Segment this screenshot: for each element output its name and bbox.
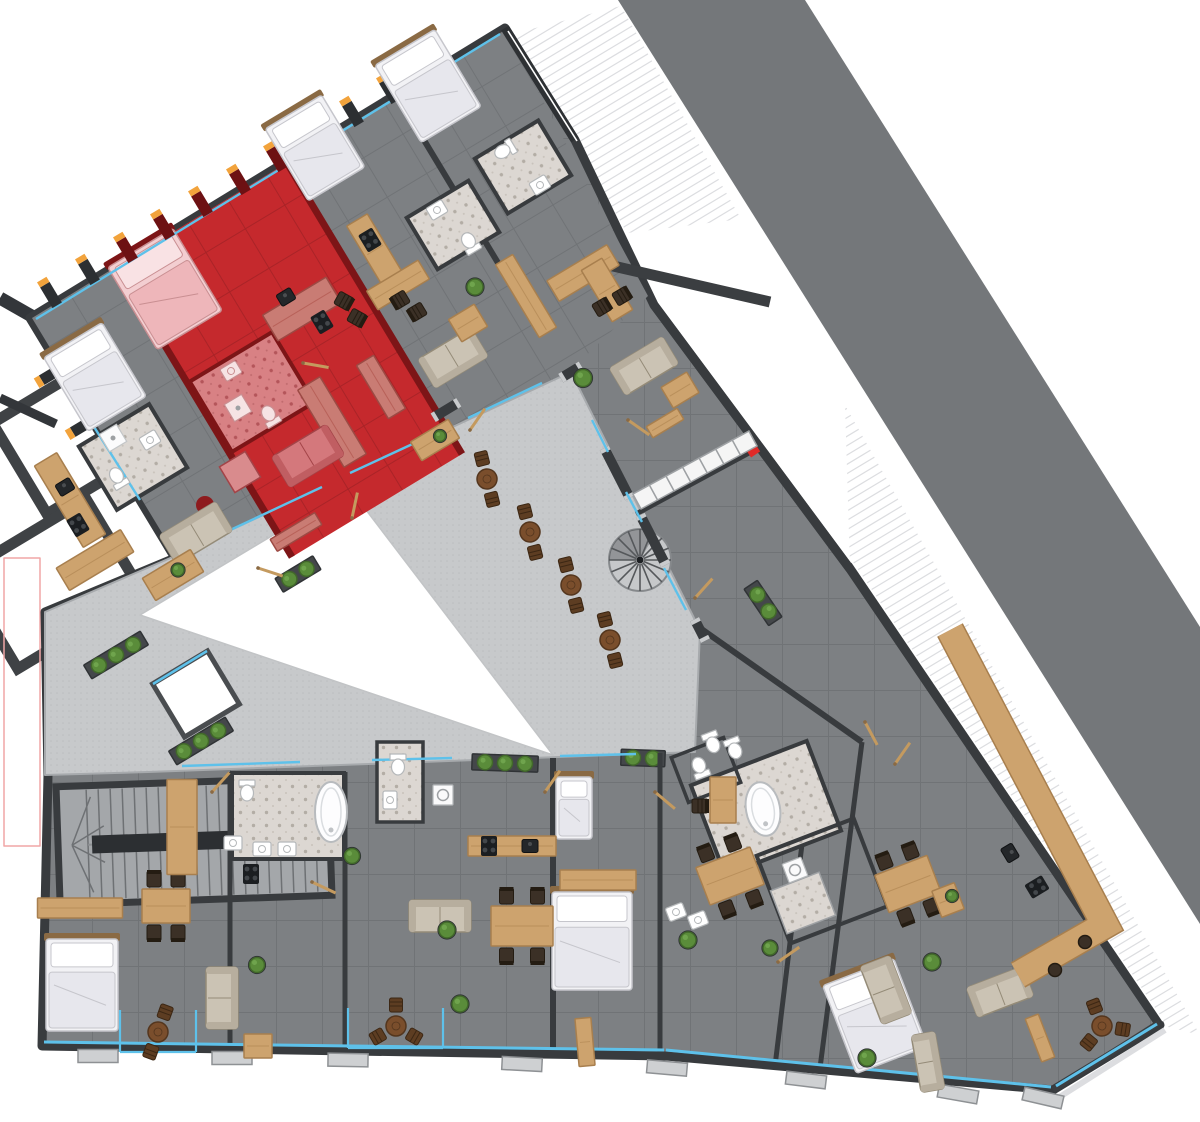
- plant: [451, 995, 469, 1013]
- plant: [762, 940, 778, 956]
- washer: [433, 785, 453, 805]
- wood-furniture: [560, 870, 636, 890]
- floor-plan-page: [0, 0, 1200, 1122]
- plant: [438, 921, 456, 939]
- balcony-support: [502, 1056, 543, 1071]
- cooktop: [481, 836, 497, 856]
- plant: [344, 848, 361, 865]
- plant: [171, 563, 185, 577]
- plant: [858, 1049, 876, 1067]
- plant: [679, 931, 697, 949]
- plant: [249, 957, 266, 974]
- toilet: [239, 780, 255, 801]
- balcony-support: [78, 1050, 118, 1063]
- bathtub: [315, 782, 347, 842]
- bed: [550, 886, 634, 990]
- floor-plan-svg: [0, 0, 1200, 1122]
- plant: [946, 890, 959, 903]
- wood-furniture: [167, 780, 197, 875]
- planter: [472, 754, 539, 772]
- bar-stool: [1049, 964, 1062, 977]
- toilet: [390, 754, 406, 775]
- balcony-support: [328, 1053, 368, 1067]
- bed: [44, 933, 120, 1031]
- sink: [253, 842, 271, 856]
- wood-furniture: [244, 1034, 272, 1058]
- wood-furniture: [575, 1017, 595, 1066]
- wood-furniture: [710, 777, 736, 823]
- sofa: [206, 967, 238, 1029]
- plant: [466, 278, 484, 296]
- sink: [383, 791, 397, 809]
- balcony-support: [647, 1060, 688, 1076]
- sink: [278, 842, 296, 856]
- cooktop: [243, 864, 259, 884]
- plant: [574, 369, 593, 388]
- kitchen-sink: [522, 840, 538, 853]
- wood-furniture: [38, 898, 123, 918]
- plant: [434, 430, 447, 443]
- bed: [554, 771, 594, 839]
- plant: [923, 953, 941, 971]
- bar-stool: [1079, 936, 1092, 949]
- chair: [692, 799, 709, 813]
- sink: [224, 836, 242, 850]
